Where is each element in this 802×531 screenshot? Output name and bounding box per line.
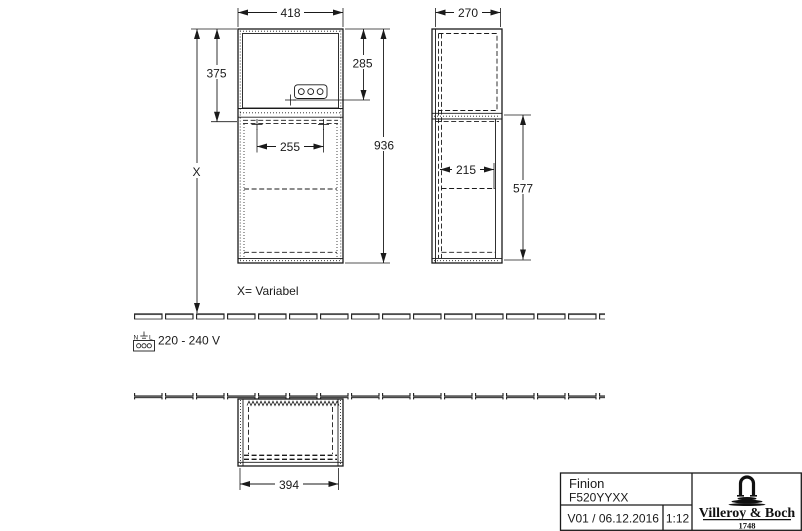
drawing-scale: 1:12 <box>666 512 690 526</box>
dim-total-height: 936 <box>374 139 394 153</box>
drawing-sheet: 418 270 375 285 936 X 255 215 577 394 X=… <box>0 0 802 531</box>
version-date: V01 / 06.12.2016 <box>568 512 660 526</box>
variable-note: X= Variabel <box>237 284 298 298</box>
socket-neutral-label: N <box>134 335 139 342</box>
brand-year: 1748 <box>739 521 756 531</box>
earth-ground-icon <box>140 332 147 339</box>
wall-section-lower <box>134 393 605 399</box>
power-supply-note: N L 220 - 240 V <box>134 332 221 352</box>
technical-drawing: 418 270 375 285 936 X 255 215 577 394 X=… <box>0 0 802 531</box>
product-name: Finion <box>569 476 604 491</box>
dim-shelf-inner-width: 255 <box>280 140 300 154</box>
wall-section-upper <box>134 313 605 319</box>
power-socket-legend-icon: N L <box>134 332 155 352</box>
socket-line-label: L <box>149 335 153 342</box>
dim-upper-height: 375 <box>206 67 226 81</box>
side-view-cabinet <box>432 29 502 263</box>
brand-name: Villeroy & Boch <box>699 506 796 521</box>
fountain-icon <box>729 477 766 506</box>
plan-view-cabinet <box>238 399 343 466</box>
title-block: Finion F520YYXX V01 / 06.12.2016 1:12 Vi… <box>561 473 802 531</box>
brand-logo: Villeroy & Boch 1748 <box>699 477 796 530</box>
dim-lower-height: 577 <box>513 182 533 196</box>
dim-side-inner-depth: 215 <box>456 163 476 177</box>
dim-front-width: 418 <box>280 6 300 20</box>
gasket-zigzag-line <box>247 401 339 405</box>
dim-side-depth: 270 <box>458 6 478 20</box>
dim-plan-width: 394 <box>279 478 299 492</box>
dim-socket-height: 285 <box>352 57 372 71</box>
dim-variable-symbol: X <box>192 165 200 179</box>
voltage-label: 220 - 240 V <box>158 334 220 348</box>
power-socket-icon <box>295 85 328 99</box>
dimension-annotations: 418 270 375 285 936 X 255 215 577 394 X=… <box>189 5 537 492</box>
article-number: F520YYXX <box>569 491 628 505</box>
